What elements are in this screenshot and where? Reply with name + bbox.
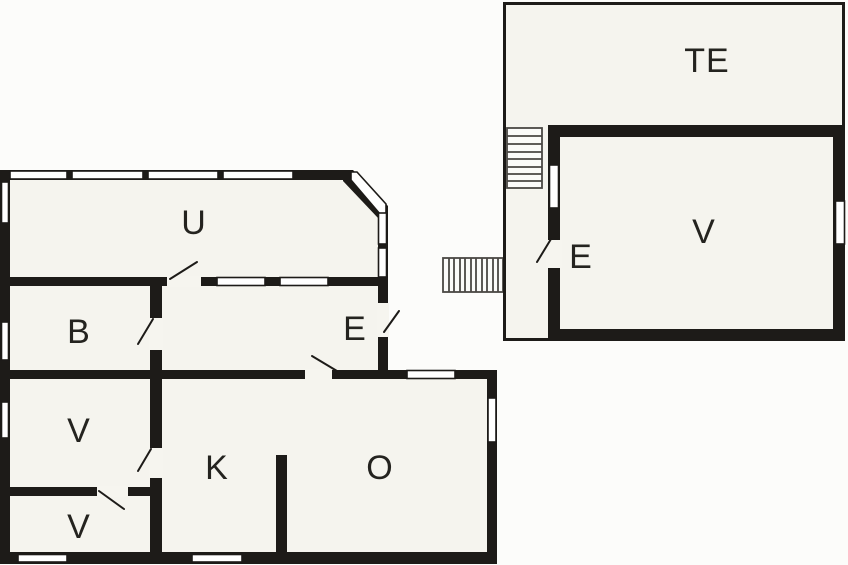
room-label-b: B	[67, 313, 91, 351]
window	[18, 555, 67, 563]
window	[379, 213, 387, 244]
room-label-v-middle: V	[67, 412, 91, 450]
door-opening	[97, 486, 128, 497]
window	[223, 171, 293, 179]
door-opening-entry	[377, 303, 389, 337]
annex-stairs	[507, 128, 542, 188]
window	[2, 322, 9, 360]
room-label-v-lower: V	[67, 508, 91, 546]
wall-segment	[548, 125, 560, 341]
room-label-entry: E	[569, 238, 593, 276]
wall-segment	[0, 170, 10, 564]
window	[72, 171, 143, 179]
window	[488, 398, 496, 442]
room-label-entry: E	[343, 310, 367, 348]
wall-segment	[548, 329, 845, 341]
door-opening	[149, 448, 163, 478]
room-label-u: U	[181, 204, 207, 242]
stairs-outline	[507, 128, 542, 188]
wall-segment	[0, 552, 497, 564]
window	[217, 278, 265, 286]
window	[2, 402, 9, 438]
window	[148, 171, 218, 179]
window	[836, 201, 845, 244]
window	[550, 165, 559, 208]
door-opening	[305, 369, 332, 380]
stairs-connector	[443, 258, 503, 292]
wall-segment	[0, 487, 162, 496]
window	[280, 278, 328, 286]
room-label-v: V	[692, 213, 716, 251]
window	[192, 555, 242, 563]
wall-segment	[276, 455, 287, 564]
window	[2, 182, 9, 223]
annex: TE V E	[505, 4, 846, 342]
room-label-o: O	[366, 449, 393, 487]
window	[407, 371, 455, 379]
stairs-outline	[443, 258, 503, 292]
room-label-k: K	[205, 449, 229, 487]
window	[10, 171, 67, 179]
floor-plan: U B E V K O V	[0, 0, 848, 565]
floor-plan-page: U B E V K O V	[0, 0, 848, 565]
wall-segment	[548, 125, 845, 137]
window	[379, 248, 387, 277]
room-label-te: TE	[684, 42, 729, 80]
